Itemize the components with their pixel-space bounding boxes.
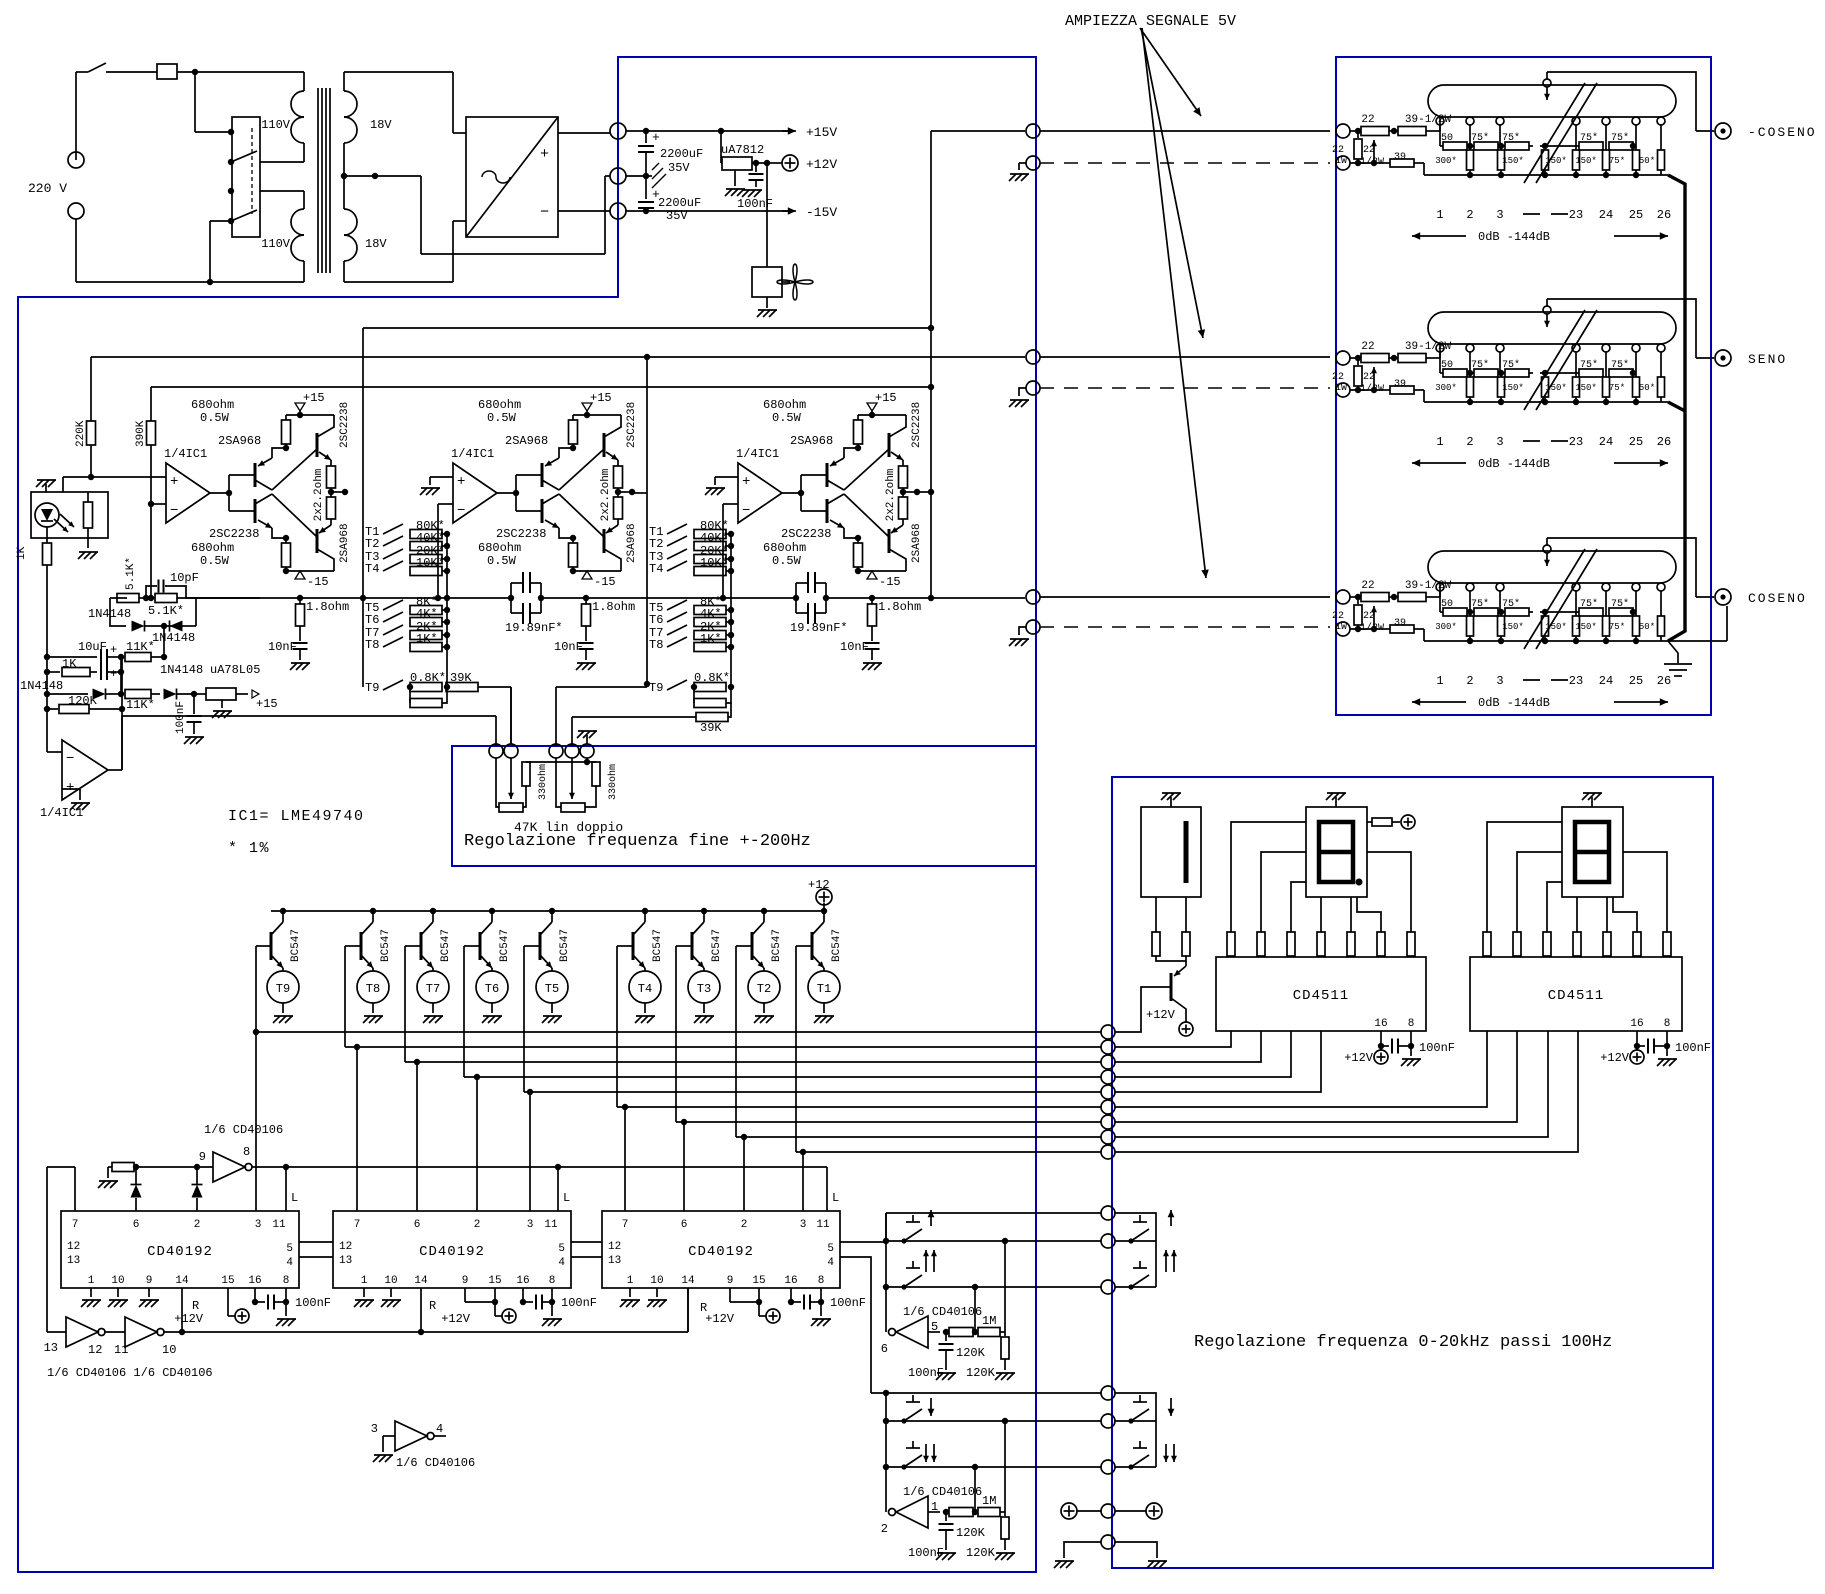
svg-text:−: −: [742, 503, 750, 519]
svg-text:8: 8: [1664, 1018, 1671, 1030]
svg-text:16: 16: [1630, 1018, 1643, 1030]
svg-text:0dB -144dB: 0dB -144dB: [1478, 230, 1550, 244]
svg-text:680ohm: 680ohm: [478, 398, 521, 412]
svg-text:10nF: 10nF: [268, 640, 297, 654]
svg-text:3: 3: [1496, 208, 1503, 222]
svg-text:39K: 39K: [700, 721, 722, 735]
svg-text:2SA968: 2SA968: [218, 434, 261, 448]
svg-text:BC547: BC547: [290, 929, 302, 962]
svg-text:40K*: 40K*: [700, 531, 729, 545]
svg-text:390K: 390K: [135, 420, 147, 447]
svg-text:150*: 150*: [1502, 383, 1524, 393]
svg-text:150*: 150*: [1575, 622, 1597, 632]
svg-text:1/6 CD40106: 1/6 CD40106: [396, 1456, 475, 1470]
svg-text:5.1K*: 5.1K*: [148, 604, 184, 618]
svg-text:+: +: [170, 474, 178, 490]
svg-text:T6: T6: [365, 613, 379, 627]
svg-text:1/6 CD40106 1/6 CD40106: 1/6 CD40106 1/6 CD40106: [47, 1366, 213, 1380]
svg-text:T3: T3: [697, 982, 711, 996]
svg-text:4: 4: [286, 1257, 293, 1269]
svg-text:2SC2238: 2SC2238: [626, 402, 638, 448]
svg-text:3: 3: [800, 1219, 807, 1231]
svg-text:+15: +15: [590, 391, 612, 405]
svg-text:6: 6: [881, 1342, 888, 1356]
svg-text:330ohm: 330ohm: [537, 764, 549, 800]
svg-text:26: 26: [1657, 674, 1671, 688]
svg-text:T2: T2: [757, 982, 771, 996]
svg-text:0.5W: 0.5W: [200, 554, 230, 568]
svg-text:−: −: [66, 751, 74, 767]
svg-text:1M: 1M: [982, 1314, 996, 1328]
svg-text:BC547: BC547: [499, 929, 511, 962]
svg-text:100nF: 100nF: [175, 701, 187, 734]
svg-text:T9: T9: [649, 681, 663, 695]
svg-text:4: 4: [558, 1257, 565, 1269]
svg-text:2SA968: 2SA968: [505, 434, 548, 448]
svg-text:100nF: 100nF: [1419, 1041, 1455, 1055]
svg-text:8: 8: [283, 1275, 290, 1287]
svg-text:220 V: 220 V: [28, 181, 67, 196]
svg-text:8: 8: [1408, 1018, 1415, 1030]
svg-text:BC547: BC547: [771, 929, 783, 962]
svg-text:24: 24: [1599, 674, 1613, 688]
svg-text:0.5W: 0.5W: [200, 411, 230, 425]
svg-text:10: 10: [162, 1343, 176, 1357]
svg-text:23: 23: [1569, 435, 1583, 449]
svg-text:110V: 110V: [261, 118, 291, 132]
svg-text:L: L: [563, 1191, 570, 1205]
svg-text:2: 2: [474, 1219, 481, 1231]
svg-text:35V: 35V: [668, 161, 690, 175]
svg-text:22: 22: [1361, 580, 1374, 592]
svg-text:26: 26: [1657, 435, 1671, 449]
svg-text:2SC2238: 2SC2238: [911, 402, 923, 448]
svg-text:3: 3: [371, 1422, 378, 1436]
svg-text:−: −: [540, 204, 549, 221]
svg-text:2x2.2ohm: 2x2.2ohm: [313, 468, 325, 521]
svg-text:+15: +15: [256, 697, 278, 711]
svg-text:+12V: +12V: [441, 1312, 471, 1326]
svg-text:9: 9: [727, 1275, 734, 1287]
svg-text:−: −: [170, 503, 178, 519]
svg-text:2: 2: [881, 1522, 888, 1536]
svg-text:BC547: BC547: [559, 929, 571, 962]
svg-text:9: 9: [199, 1150, 206, 1164]
svg-text:+: +: [110, 643, 117, 657]
svg-text:150*: 150*: [1502, 622, 1524, 632]
svg-text:0dB -144dB: 0dB -144dB: [1478, 696, 1550, 710]
svg-text:T4: T4: [365, 562, 379, 576]
svg-text:120K: 120K: [966, 1546, 996, 1560]
svg-text:22: 22: [1363, 145, 1375, 156]
svg-text:1.8ohm: 1.8ohm: [592, 600, 635, 614]
svg-text:100nF: 100nF: [908, 1546, 944, 1560]
svg-text:COSENO: COSENO: [1748, 591, 1807, 606]
svg-text:+: +: [652, 130, 660, 145]
svg-text:19.89nF*: 19.89nF*: [790, 621, 848, 635]
svg-text:1K*: 1K*: [700, 632, 722, 646]
svg-text:1K*: 1K*: [416, 632, 438, 646]
svg-text:120K: 120K: [956, 1346, 986, 1360]
svg-text:+: +: [540, 146, 549, 163]
svg-text:680ohm: 680ohm: [191, 398, 234, 412]
svg-text:1W: 1W: [1335, 156, 1347, 167]
svg-text:7: 7: [354, 1219, 361, 1231]
svg-text:100nF: 100nF: [561, 1296, 597, 1310]
svg-text:1/4IC1: 1/4IC1: [40, 806, 83, 820]
svg-text:9: 9: [146, 1275, 153, 1287]
svg-text:2x2.2ohm: 2x2.2ohm: [600, 468, 612, 521]
svg-text:3: 3: [1496, 674, 1503, 688]
svg-text:1.8ohm: 1.8ohm: [878, 600, 921, 614]
svg-text:1W: 1W: [1335, 383, 1347, 394]
svg-text:0.5W: 0.5W: [487, 411, 517, 425]
svg-text:2: 2: [1466, 435, 1473, 449]
svg-text:+12V: +12V: [806, 157, 837, 172]
svg-text:1: 1: [627, 1275, 634, 1287]
svg-text:BC547: BC547: [380, 929, 392, 962]
svg-text:22: 22: [1363, 372, 1375, 383]
svg-text:110V: 110V: [261, 237, 291, 251]
svg-text:16: 16: [248, 1275, 261, 1287]
svg-text:1: 1: [88, 1275, 95, 1287]
svg-text:15: 15: [221, 1275, 234, 1287]
svg-text:1N4148: 1N4148: [160, 663, 203, 677]
svg-text:Regolazione frequenza 0-20kHz: Regolazione frequenza 0-20kHz passi 100H…: [1194, 1333, 1612, 1352]
svg-text:680ohm: 680ohm: [763, 541, 806, 555]
svg-text:39: 39: [1394, 379, 1406, 390]
svg-text:2: 2: [194, 1219, 201, 1231]
svg-text:CD40192: CD40192: [419, 1244, 485, 1260]
svg-text:1/4IC1: 1/4IC1: [451, 447, 494, 461]
svg-text:2SC2238: 2SC2238: [496, 527, 546, 541]
svg-text:1: 1: [1436, 208, 1443, 222]
svg-text:0dB -144dB: 0dB -144dB: [1478, 457, 1550, 471]
svg-text:+: +: [742, 474, 750, 490]
svg-text:T5: T5: [545, 982, 559, 996]
svg-text:-15: -15: [307, 575, 329, 589]
svg-text:75*: 75*: [1609, 156, 1625, 166]
svg-text:0.5W: 0.5W: [772, 411, 802, 425]
svg-text:12: 12: [339, 1241, 352, 1253]
svg-text:120K: 120K: [956, 1526, 986, 1540]
svg-text:1/4IC1: 1/4IC1: [164, 447, 207, 461]
svg-text:2200uF: 2200uF: [660, 147, 703, 161]
svg-text:BC547: BC547: [831, 929, 843, 962]
svg-text:1N4148: 1N4148: [20, 679, 63, 693]
svg-text:-15V: -15V: [806, 205, 837, 220]
svg-text:1N4148: 1N4148: [88, 607, 131, 621]
svg-text:100nF: 100nF: [908, 1366, 944, 1380]
svg-text:22: 22: [1332, 372, 1344, 383]
svg-text:13: 13: [608, 1255, 621, 1267]
svg-text:680ohm: 680ohm: [763, 398, 806, 412]
svg-text:12: 12: [88, 1343, 102, 1357]
svg-text:2SA968: 2SA968: [339, 523, 351, 563]
svg-text:R: R: [700, 1301, 707, 1315]
svg-text:100nF: 100nF: [295, 1296, 331, 1310]
svg-text:150*: 150*: [1575, 156, 1597, 166]
svg-text:+12V: +12V: [1344, 1051, 1374, 1065]
svg-text:24: 24: [1599, 435, 1613, 449]
svg-text:150*: 150*: [1575, 383, 1597, 393]
svg-text:22: 22: [1332, 611, 1344, 622]
svg-text:6: 6: [414, 1219, 421, 1231]
svg-text:IC1= LME49740: IC1= LME49740: [228, 808, 365, 825]
svg-text:Regolazione frequenza fine +-2: Regolazione frequenza fine +-200Hz: [464, 832, 811, 851]
svg-text:300*: 300*: [1435, 622, 1457, 632]
svg-text:25: 25: [1629, 208, 1643, 222]
svg-text:39: 39: [1394, 618, 1406, 629]
svg-text:1M: 1M: [982, 1494, 996, 1508]
svg-text:1: 1: [1436, 674, 1443, 688]
svg-text:14: 14: [681, 1275, 695, 1287]
svg-text:2SA968: 2SA968: [626, 523, 638, 563]
svg-text:18V: 18V: [365, 237, 387, 251]
svg-text:8: 8: [549, 1275, 556, 1287]
svg-text:+15V: +15V: [806, 125, 837, 140]
svg-text:2: 2: [1466, 674, 1473, 688]
svg-text:15: 15: [488, 1275, 501, 1287]
svg-text:50*: 50*: [1639, 156, 1655, 166]
svg-text:11: 11: [114, 1343, 128, 1357]
svg-text:T9: T9: [365, 681, 379, 695]
svg-text:10: 10: [650, 1275, 663, 1287]
svg-text:3: 3: [1496, 435, 1503, 449]
svg-text:680ohm: 680ohm: [478, 541, 521, 555]
svg-text:220K: 220K: [75, 420, 87, 447]
svg-text:39: 39: [1394, 152, 1406, 163]
svg-text:uA78L05: uA78L05: [210, 663, 260, 677]
svg-text:T2: T2: [649, 537, 663, 551]
svg-text:+12V: +12V: [705, 1312, 735, 1326]
svg-text:24: 24: [1599, 208, 1613, 222]
svg-text:100nF: 100nF: [1675, 1041, 1711, 1055]
svg-text:12: 12: [608, 1241, 621, 1253]
svg-text:* 1%: * 1%: [228, 840, 270, 857]
svg-text:1: 1: [361, 1275, 368, 1287]
svg-text:T4: T4: [649, 562, 663, 576]
svg-text:0.5W: 0.5W: [772, 554, 802, 568]
svg-text:2x2.2ohm: 2x2.2ohm: [885, 468, 897, 521]
svg-text:T6: T6: [485, 982, 499, 996]
svg-text:+12V: +12V: [1600, 1051, 1630, 1065]
svg-text:15: 15: [752, 1275, 765, 1287]
svg-text:680ohm: 680ohm: [191, 541, 234, 555]
svg-text:1/6 CD40106: 1/6 CD40106: [903, 1305, 982, 1319]
svg-text:8: 8: [818, 1275, 825, 1287]
svg-text:R: R: [429, 1299, 436, 1313]
svg-text:uA7812: uA7812: [721, 143, 764, 157]
svg-text:22: 22: [1363, 611, 1375, 622]
svg-text:SENO: SENO: [1748, 352, 1787, 367]
svg-text:T9: T9: [276, 982, 290, 996]
svg-text:16: 16: [1374, 1018, 1387, 1030]
svg-text:18V: 18V: [370, 118, 392, 132]
svg-text:0.5W: 0.5W: [487, 554, 517, 568]
svg-text:1.8ohm: 1.8ohm: [306, 600, 349, 614]
svg-text:10: 10: [384, 1275, 397, 1287]
svg-text:4K*: 4K*: [700, 607, 722, 621]
svg-text:1/6 CD40106: 1/6 CD40106: [903, 1485, 982, 1499]
svg-text:4: 4: [436, 1422, 443, 1436]
svg-text:22: 22: [1361, 114, 1374, 126]
svg-text:11K*: 11K*: [126, 698, 155, 712]
svg-text:−: −: [457, 503, 465, 519]
svg-text:11: 11: [272, 1219, 286, 1231]
svg-text:11: 11: [544, 1219, 558, 1231]
svg-text:R: R: [192, 1299, 199, 1313]
svg-text:16: 16: [784, 1275, 797, 1287]
svg-text:8: 8: [243, 1145, 250, 1159]
svg-text:120K: 120K: [68, 694, 98, 708]
svg-text:10pF: 10pF: [170, 571, 199, 585]
svg-text:2SC2238: 2SC2238: [209, 527, 259, 541]
svg-text:13: 13: [44, 1341, 58, 1355]
svg-text:-15: -15: [879, 575, 901, 589]
svg-text:1: 1: [1436, 435, 1443, 449]
svg-text:CD40192: CD40192: [147, 1244, 213, 1260]
svg-text:50*: 50*: [1639, 383, 1655, 393]
svg-text:12: 12: [67, 1241, 80, 1253]
svg-text:2SA968: 2SA968: [911, 523, 923, 563]
svg-text:9: 9: [462, 1275, 469, 1287]
svg-text:+12V: +12V: [1146, 1008, 1176, 1022]
svg-text:4K*: 4K*: [416, 607, 438, 621]
svg-text:BC547: BC547: [440, 929, 452, 962]
svg-text:23: 23: [1569, 674, 1583, 688]
svg-text:BC547: BC547: [711, 929, 723, 962]
svg-text:T1: T1: [817, 982, 831, 996]
svg-text:13: 13: [339, 1255, 352, 1267]
svg-text:23: 23: [1569, 208, 1583, 222]
svg-text:CD4511: CD4511: [1548, 988, 1604, 1004]
svg-text:T8: T8: [365, 638, 379, 652]
svg-text:4: 4: [827, 1257, 834, 1269]
svg-text:L: L: [291, 1191, 298, 1205]
svg-text:2SC2238: 2SC2238: [339, 402, 351, 448]
svg-text:T7: T7: [426, 982, 440, 996]
svg-text:T8: T8: [366, 982, 380, 996]
svg-text:+15: +15: [303, 391, 325, 405]
svg-text:25: 25: [1629, 674, 1643, 688]
svg-text:+12V: +12V: [174, 1312, 204, 1326]
svg-text:1/4IC1: 1/4IC1: [736, 447, 779, 461]
svg-text:+: +: [457, 474, 465, 490]
svg-text:1N4148: 1N4148: [152, 631, 195, 645]
svg-text:5: 5: [827, 1243, 834, 1255]
svg-text:10nF: 10nF: [554, 640, 583, 654]
svg-text:22: 22: [1361, 341, 1374, 353]
svg-text:-15: -15: [594, 575, 616, 589]
svg-text:26: 26: [1657, 208, 1671, 222]
svg-text:1K: 1K: [16, 546, 28, 560]
svg-text:150*: 150*: [1502, 156, 1524, 166]
svg-text:6: 6: [681, 1219, 688, 1231]
svg-text:T2: T2: [365, 537, 379, 551]
svg-text:25: 25: [1629, 435, 1643, 449]
svg-text:T4: T4: [638, 982, 652, 996]
svg-text:40K*: 40K*: [416, 531, 445, 545]
svg-text:300*: 300*: [1435, 383, 1457, 393]
svg-text:+: +: [66, 780, 74, 796]
svg-text:10K*: 10K*: [416, 556, 445, 570]
svg-text:16: 16: [516, 1275, 529, 1287]
svg-text:7: 7: [622, 1219, 629, 1231]
svg-text:2: 2: [1466, 208, 1473, 222]
svg-text:AMPIEZZA SEGNALE 5V: AMPIEZZA SEGNALE 5V: [1065, 13, 1236, 30]
svg-text:22: 22: [1332, 145, 1344, 156]
svg-text:2200uF: 2200uF: [658, 196, 701, 210]
svg-text:CD40192: CD40192: [688, 1244, 754, 1260]
svg-text:L: L: [832, 1191, 839, 1205]
svg-text:14: 14: [414, 1275, 428, 1287]
svg-text:5.1K*: 5.1K*: [125, 557, 137, 590]
svg-text:14: 14: [175, 1275, 189, 1287]
svg-text:T6: T6: [649, 613, 663, 627]
svg-text:75*: 75*: [1609, 622, 1625, 632]
svg-text:100nF: 100nF: [830, 1296, 866, 1310]
svg-text:13: 13: [67, 1255, 80, 1267]
svg-text:10uF: 10uF: [78, 640, 107, 654]
svg-text:BC547: BC547: [652, 929, 664, 962]
svg-text:-COSENO: -COSENO: [1748, 125, 1817, 140]
svg-text:330ohm: 330ohm: [607, 764, 619, 800]
svg-text:+: +: [110, 667, 117, 681]
svg-text:2: 2: [741, 1219, 748, 1231]
svg-text:3: 3: [527, 1219, 534, 1231]
svg-text:2SC2238: 2SC2238: [781, 527, 831, 541]
svg-text:10nF: 10nF: [840, 640, 869, 654]
svg-text:3: 3: [255, 1219, 262, 1231]
svg-text:11: 11: [816, 1219, 830, 1231]
svg-text:300*: 300*: [1435, 156, 1457, 166]
svg-text:5: 5: [558, 1243, 565, 1255]
svg-text:5: 5: [286, 1243, 293, 1255]
svg-text:10K*: 10K*: [700, 556, 729, 570]
svg-text:10: 10: [111, 1275, 124, 1287]
svg-text:75*: 75*: [1609, 383, 1625, 393]
svg-text:1K: 1K: [62, 657, 77, 671]
svg-text:T8: T8: [649, 638, 663, 652]
svg-text:+12: +12: [808, 878, 830, 892]
svg-text:+15: +15: [875, 391, 897, 405]
svg-text:2SA968: 2SA968: [790, 434, 833, 448]
svg-text:7: 7: [72, 1219, 79, 1231]
svg-text:50*: 50*: [1639, 622, 1655, 632]
svg-text:120K: 120K: [966, 1366, 996, 1380]
svg-text:1/6 CD40106: 1/6 CD40106: [204, 1123, 283, 1137]
svg-text:19.89nF*: 19.89nF*: [505, 621, 563, 635]
svg-text:CD4511: CD4511: [1293, 988, 1349, 1004]
svg-text:6: 6: [133, 1219, 140, 1231]
svg-text:1W: 1W: [1335, 622, 1347, 633]
